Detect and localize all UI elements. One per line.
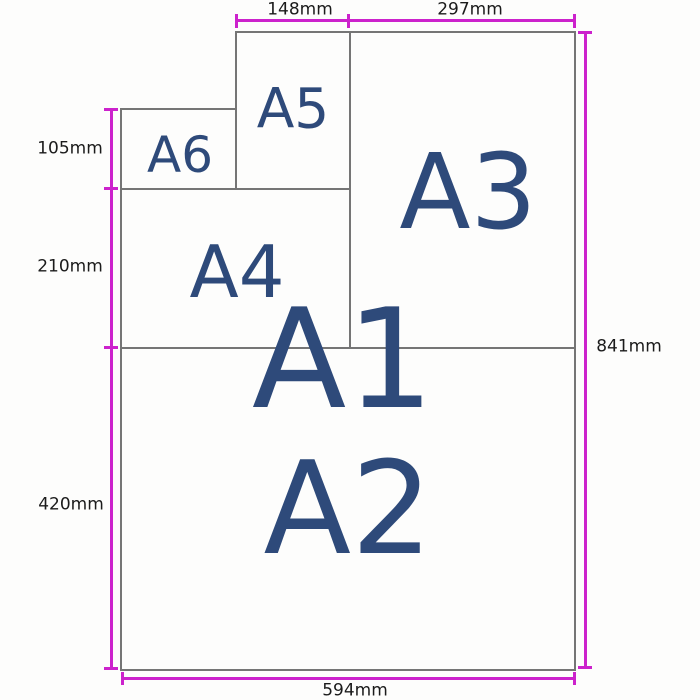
dim-tick-left-a6-top (104, 108, 118, 111)
dim-tick-bottom-left (121, 672, 124, 685)
dim-tick-top-left (235, 14, 238, 28)
dim-tick-top-middle (347, 14, 350, 28)
a6-a4-divider (120, 188, 351, 190)
dim-tick-bottom-right (573, 672, 576, 685)
dim-label-a2-height: 420mm (38, 497, 104, 514)
a6-label: A6 (147, 130, 213, 180)
dim-line-left (110, 109, 113, 670)
dim-tick-right-bottom (578, 666, 592, 669)
dim-tick-left-a2-top (104, 346, 118, 349)
dim-tick-left-a4-top (104, 187, 118, 190)
dim-line-right (584, 32, 587, 669)
a6-top-edge (120, 108, 237, 110)
dim-label-a6-height: 105mm (37, 141, 103, 158)
dim-label-a4-height: 210mm (37, 259, 103, 276)
dim-label-a3-width: 297mm (437, 2, 503, 19)
dim-label-a1-width: 594mm (322, 683, 388, 700)
a3-label: A3 (399, 140, 536, 244)
paper-size-diagram: 148mm 297mm 105mm 210mm 420mm 841mm 594m… (0, 0, 700, 700)
sheet-outline-top-edge (235, 31, 576, 33)
dim-tick-left-bottom (104, 667, 118, 670)
a6-a5-divider (235, 31, 237, 190)
sheet-outline-right-edge (574, 31, 576, 671)
a1-label: A1 (252, 291, 434, 429)
a5-label: A5 (257, 82, 330, 137)
dim-label-a1-height: 841mm (596, 339, 662, 356)
dim-tick-top-right (573, 14, 576, 28)
sheet-outline-left-edge (120, 108, 122, 671)
dim-tick-right-top (578, 31, 592, 34)
a2-label: A2 (264, 446, 433, 574)
sheet-outline-bottom-edge (120, 669, 576, 671)
dim-label-a5-width: 148mm (267, 2, 333, 19)
